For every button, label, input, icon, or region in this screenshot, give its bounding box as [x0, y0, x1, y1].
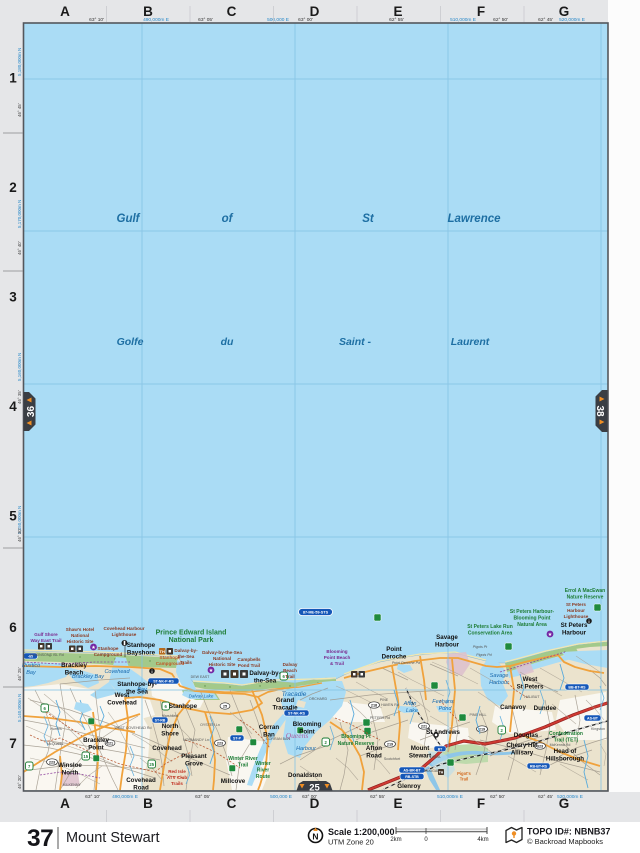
svg-text:Pleasant: Pleasant — [181, 753, 206, 760]
svg-text:ST-P: ST-P — [233, 737, 242, 741]
svg-text:Errol A MacEwan: Errol A MacEwan — [565, 588, 605, 594]
svg-text:Mount: Mount — [411, 745, 430, 752]
svg-text:Mount Stewart: Mount Stewart — [66, 830, 160, 846]
svg-text:Marshfield: Marshfield — [162, 714, 179, 718]
svg-text:AS-BR-BT: AS-BR-BT — [403, 769, 421, 773]
svg-text:46° 25': 46° 25' — [17, 667, 22, 681]
svg-text:Bay: Bay — [137, 687, 148, 693]
svg-text:5,180,000m N: 5,180,000m N — [17, 48, 22, 76]
svg-text:Pigots Pt: Pigots Pt — [473, 645, 488, 649]
svg-text:Covehead: Covehead — [107, 700, 137, 707]
svg-text:A: A — [60, 796, 70, 811]
svg-text:Laurent: Laurent — [451, 336, 490, 348]
svg-text:St Peters Lake Run: St Peters Lake Run — [467, 624, 513, 630]
svg-text:Stewart: Stewart — [409, 753, 431, 760]
svg-text:WEST COVEHEAD Rd: WEST COVEHEAD Rd — [114, 726, 151, 730]
svg-text:Scale 1:200,000: Scale 1:200,000 — [328, 827, 395, 837]
svg-text:★: ★ — [548, 632, 553, 638]
svg-text:E: E — [393, 796, 402, 811]
svg-text:Tracadie: Tracadie — [282, 691, 307, 698]
svg-text:Point: Point — [386, 646, 401, 653]
svg-text:Historic Site: Historic Site — [67, 639, 94, 644]
svg-text:Grand: Grand — [276, 697, 294, 704]
svg-text:Dundee: Dundee — [534, 705, 557, 712]
svg-text:Saint -: Saint - — [339, 336, 372, 348]
svg-text:West: West — [523, 676, 538, 683]
svg-text:Bay: Bay — [26, 670, 37, 676]
svg-text:36: 36 — [26, 406, 37, 418]
svg-text:Afton: Afton — [403, 701, 417, 707]
svg-text:221: 221 — [421, 724, 427, 728]
svg-text:PINE: PINE — [380, 698, 389, 702]
svg-text:D: D — [310, 4, 320, 19]
svg-text:Natural Area: Natural Area — [517, 622, 547, 628]
svg-text:6: 6 — [9, 620, 17, 635]
svg-text:AS-BT: AS-BT — [587, 717, 599, 721]
svg-text:HALIBUT: HALIBUT — [524, 695, 540, 699]
svg-text:C: C — [227, 4, 237, 19]
svg-text:RB-BT-RS: RB-BT-RS — [530, 765, 548, 769]
svg-text:Dalvay-by-the-Sea: Dalvay-by-the-Sea — [202, 650, 242, 655]
svg-text:Gulf Shore: Gulf Shore — [34, 632, 58, 637]
svg-text:UTM Zone 20: UTM Zone 20 — [328, 838, 374, 847]
svg-text:Grove: Grove — [185, 761, 203, 768]
svg-text:5,160,000m N: 5,160,000m N — [17, 353, 22, 381]
svg-text:B: B — [143, 4, 153, 19]
svg-text:Conservation Area: Conservation Area — [468, 631, 512, 637]
svg-text:National Park: National Park — [169, 637, 214, 644]
svg-text:St Andrews: St Andrews — [426, 729, 460, 736]
svg-text:OYSTER Ln: OYSTER Ln — [200, 723, 220, 727]
svg-text:Douglas: Douglas — [514, 732, 539, 739]
svg-text:Harbour: Harbour — [562, 630, 587, 637]
svg-text:Campbells: Campbells — [237, 657, 261, 662]
svg-text:15: 15 — [83, 754, 88, 759]
svg-text:490,000m E: 490,000m E — [143, 17, 169, 23]
svg-text:North: North — [62, 770, 79, 777]
svg-text:Tracadie: Tracadie — [272, 705, 298, 712]
svg-text:Lake: Lake — [406, 708, 418, 714]
svg-text:F: F — [477, 4, 485, 19]
svg-text:Cherry Hill: Cherry Hill — [506, 742, 538, 749]
svg-text:3: 3 — [9, 290, 17, 305]
svg-text:219: 219 — [479, 727, 485, 731]
svg-text:223: 223 — [217, 741, 223, 745]
svg-text:Nature Reserve: Nature Reserve — [567, 595, 604, 601]
svg-text:McKenna Rd: McKenna Rd — [550, 743, 571, 747]
svg-text:★: ★ — [91, 645, 96, 651]
svg-text:7: 7 — [9, 736, 17, 751]
svg-text:Bayshore: Bayshore — [127, 650, 156, 657]
svg-text:Dalvay Lake: Dalvay Lake — [189, 694, 214, 699]
svg-text:i: i — [151, 669, 152, 674]
svg-text:Brackley: Brackley — [61, 662, 87, 669]
svg-text:Blooming Point: Blooming Point — [514, 616, 551, 622]
svg-text:63° 00': 63° 00' — [298, 17, 313, 23]
svg-text:C: C — [227, 796, 237, 811]
svg-text:Lawrence: Lawrence — [447, 213, 501, 225]
svg-text:Covehead: Covehead — [126, 777, 156, 784]
svg-text:Donaldston: Donaldston — [288, 772, 322, 779]
svg-text:37: 37 — [27, 825, 53, 852]
svg-text:2: 2 — [9, 180, 17, 195]
svg-text:E: E — [393, 4, 402, 19]
svg-text:Dalvay-by-: Dalvay-by- — [174, 648, 198, 653]
svg-text:46° 45': 46° 45' — [17, 103, 22, 117]
svg-text:Scotchfort: Scotchfort — [384, 757, 400, 761]
svg-text:ST-RB: ST-RB — [155, 719, 166, 723]
svg-text:St: St — [362, 213, 375, 225]
svg-text:Dalvay: Dalvay — [283, 662, 298, 667]
svg-text:38: 38 — [594, 405, 605, 417]
svg-text:2km: 2km — [390, 837, 401, 843]
svg-text:Winsloe: Winsloe — [58, 762, 82, 769]
svg-text:63° 05': 63° 05' — [198, 17, 213, 23]
svg-text:Trail: Trail — [285, 674, 294, 679]
svg-text:G: G — [559, 796, 570, 811]
svg-text:Point Beach: Point Beach — [324, 655, 351, 660]
svg-text:63° 10': 63° 10' — [85, 794, 100, 800]
svg-text:62° 55': 62° 55' — [370, 794, 385, 800]
svg-text:St Peters Harbour-: St Peters Harbour- — [510, 609, 555, 615]
svg-text:Pond Trail: Pond Trail — [238, 663, 260, 668]
svg-text:G: G — [559, 4, 570, 19]
svg-text:Hurrles: Hurrles — [50, 727, 62, 731]
svg-text:Harbour: Harbour — [567, 608, 585, 613]
svg-text:Rustico: Rustico — [22, 663, 40, 669]
svg-text:St Peters: St Peters — [566, 602, 586, 607]
svg-text:25: 25 — [223, 704, 227, 708]
svg-text:500,000 E: 500,000 E — [270, 794, 292, 800]
svg-text:National: National — [71, 633, 89, 638]
svg-text:Savage: Savage — [490, 673, 509, 679]
svg-text:Red Isle: Red Isle — [168, 769, 186, 774]
svg-text:62° 55': 62° 55' — [389, 17, 404, 23]
svg-text:25: 25 — [149, 762, 154, 767]
svg-text:25: 25 — [309, 783, 320, 794]
svg-text:the-Sea: the-Sea — [254, 678, 277, 685]
svg-text:Winter: Winter — [255, 761, 271, 767]
svg-text:D: D — [310, 796, 320, 811]
svg-text:Harbour: Harbour — [489, 680, 510, 686]
svg-text:46° 30': 46° 30' — [17, 528, 22, 542]
svg-text:& Trail: & Trail — [330, 661, 344, 666]
svg-text:Stanhope: Stanhope — [127, 642, 156, 649]
svg-text:Savage: Savage — [436, 634, 458, 641]
svg-text:ROBINSONS ISL Rd: ROBINSONS ISL Rd — [30, 653, 63, 657]
svg-text:Road: Road — [366, 753, 382, 760]
svg-text:★: ★ — [209, 668, 214, 674]
svg-text:5,170,000m N: 5,170,000m N — [17, 200, 22, 228]
svg-text:NORMANDY Ln: NORMANDY Ln — [183, 738, 209, 742]
svg-text:46° 35': 46° 35' — [17, 390, 22, 404]
svg-text:Campground: Campground — [94, 652, 123, 657]
svg-text:490,000m E: 490,000m E — [112, 794, 138, 800]
svg-text:Deroche: Deroche — [382, 654, 407, 661]
svg-text:du: du — [221, 336, 234, 348]
svg-text:Head of: Head of — [554, 748, 578, 755]
svg-text:Glenroy: Glenroy — [397, 783, 421, 790]
svg-text:Allisary: Allisary — [511, 750, 534, 757]
svg-text:Blooming: Blooming — [293, 721, 322, 728]
svg-text:Brackley Bay: Brackley Bay — [72, 674, 105, 680]
svg-text:Prince Edward Island: Prince Edward Island — [156, 630, 227, 637]
svg-text:4km: 4km — [477, 837, 488, 843]
svg-text:5,140,000m N: 5,140,000m N — [17, 694, 22, 722]
svg-text:Covehead: Covehead — [104, 669, 130, 675]
svg-text:HAVEN Rd: HAVEN Rd — [381, 703, 399, 707]
svg-text:Way East Trail: Way East Trail — [31, 638, 62, 643]
svg-text:TOPO ID#: NBNB37: TOPO ID#: NBNB37 — [527, 827, 610, 837]
svg-text:Confederation: Confederation — [549, 731, 583, 737]
svg-text:Canavoy: Canavoy — [500, 704, 526, 711]
svg-text:B: B — [143, 796, 153, 811]
svg-text:46° 20': 46° 20' — [17, 775, 22, 789]
svg-text:i: i — [588, 619, 589, 624]
svg-text:DEW EAST: DEW EAST — [191, 675, 211, 679]
svg-text:Winter River: Winter River — [228, 756, 257, 762]
svg-text:WMA: WMA — [432, 755, 441, 759]
svg-text:Millcove: Millcove — [221, 778, 246, 785]
svg-text:Feehans: Feehans — [432, 699, 454, 705]
svg-text:510,000m E: 510,000m E — [437, 794, 463, 800]
svg-text:218: 218 — [371, 703, 377, 707]
svg-text:Covehead: Covehead — [152, 745, 182, 752]
svg-text:46° 40': 46° 40' — [17, 241, 22, 255]
svg-text:Trail: Trail — [238, 763, 249, 769]
svg-text:63° 10': 63° 10' — [89, 17, 104, 23]
svg-text:62° 45': 62° 45' — [538, 17, 553, 23]
svg-text:510,000m E: 510,000m E — [450, 17, 476, 23]
svg-text:© Backroad Mapbooks: © Backroad Mapbooks — [527, 837, 603, 846]
svg-text:Stanhope: Stanhope — [169, 703, 198, 710]
svg-text:Trails: Trails — [171, 781, 183, 786]
svg-text:Beach: Beach — [283, 668, 297, 673]
svg-text:ORCHARD: ORCHARD — [309, 697, 328, 701]
svg-text:Blooming: Blooming — [326, 649, 347, 654]
svg-text:West: West — [115, 692, 130, 699]
svg-text:PETERS Rd: PETERS Rd — [370, 716, 390, 720]
svg-text:219: 219 — [387, 742, 393, 746]
svg-text:National: National — [213, 656, 231, 661]
svg-text:Trails: Trails — [180, 660, 192, 665]
svg-text:Harbour: Harbour — [435, 642, 460, 649]
svg-text:62° 50': 62° 50' — [490, 794, 505, 800]
svg-text:62° 45': 62° 45' — [538, 794, 553, 800]
svg-text:Gulf: Gulf — [117, 213, 141, 225]
svg-text:Point Deroche Pd: Point Deroche Pd — [392, 661, 421, 665]
svg-text:ATV Club: ATV Club — [167, 775, 188, 780]
svg-text:F: F — [477, 796, 485, 811]
svg-text:500,000 E: 500,000 E — [267, 17, 289, 23]
svg-text:of: of — [222, 213, 234, 225]
svg-text:A: A — [60, 4, 70, 19]
svg-text:McQuaids: McQuaids — [47, 742, 63, 746]
svg-text:Trail: Trail — [460, 777, 469, 782]
svg-text:Pond: Pond — [439, 706, 453, 712]
svg-text:TH: TH — [439, 771, 444, 775]
svg-text:Afton: Afton — [366, 745, 382, 752]
svg-text:PINE HILL: PINE HILL — [470, 713, 487, 717]
svg-text:Shaw's Hotel: Shaw's Hotel — [66, 627, 94, 632]
svg-text:Pigot's: Pigot's — [457, 771, 471, 776]
svg-text:Route: Route — [256, 774, 270, 780]
svg-text:223: 223 — [49, 760, 55, 764]
svg-text:520,000m E: 520,000m E — [559, 17, 585, 23]
svg-text:N: N — [312, 832, 318, 842]
svg-text:Golfe: Golfe — [117, 336, 144, 348]
svg-text:Lighthouse: Lighthouse — [564, 614, 589, 619]
svg-text:BB-BT-RS: BB-BT-RS — [568, 686, 586, 690]
svg-text:62° 50': 62° 50' — [493, 17, 508, 23]
svg-text:River: River — [257, 768, 270, 774]
svg-text:63° 05': 63° 05' — [195, 794, 210, 800]
svg-text:North: North — [162, 723, 179, 730]
svg-text:CORRAN BAN: CORRAN BAN — [266, 737, 290, 741]
svg-text:Brackley: Brackley — [83, 737, 109, 744]
svg-text:Blooming Pt: Blooming Pt — [341, 734, 371, 740]
svg-text:Corran: Corran — [259, 724, 280, 731]
svg-text:Stanhope: Stanhope — [98, 646, 119, 651]
svg-text:KILKENNY: KILKENNY — [63, 783, 81, 787]
svg-text:Shore: Shore — [161, 731, 179, 738]
svg-text:St Peters: St Peters — [517, 684, 544, 691]
svg-text:St Peters: St Peters — [561, 622, 588, 629]
svg-text:Harbour: Harbour — [296, 746, 317, 752]
svg-text:Hillsborough: Hillsborough — [546, 756, 584, 763]
svg-text:Dalvay-by-: Dalvay-by- — [249, 670, 280, 677]
svg-text:87-ME-59-STS: 87-ME-59-STS — [303, 611, 329, 615]
svg-text:TH: TH — [160, 649, 165, 654]
svg-text:Kingston: Kingston — [591, 727, 605, 731]
svg-text:323: 323 — [537, 744, 543, 748]
svg-text:the-Sea: the-Sea — [178, 654, 195, 659]
svg-text:Pigots Pd: Pigots Pd — [476, 653, 492, 657]
svg-text:Historic Site: Historic Site — [209, 662, 236, 667]
svg-text:ST-NK-RS: ST-NK-RS — [288, 712, 306, 716]
svg-text:Point: Point — [88, 745, 103, 752]
svg-text:Lighthouse: Lighthouse — [112, 632, 137, 637]
svg-text:Covehead Harbour: Covehead Harbour — [103, 626, 144, 631]
svg-text:RB-STB: RB-STB — [405, 775, 419, 779]
